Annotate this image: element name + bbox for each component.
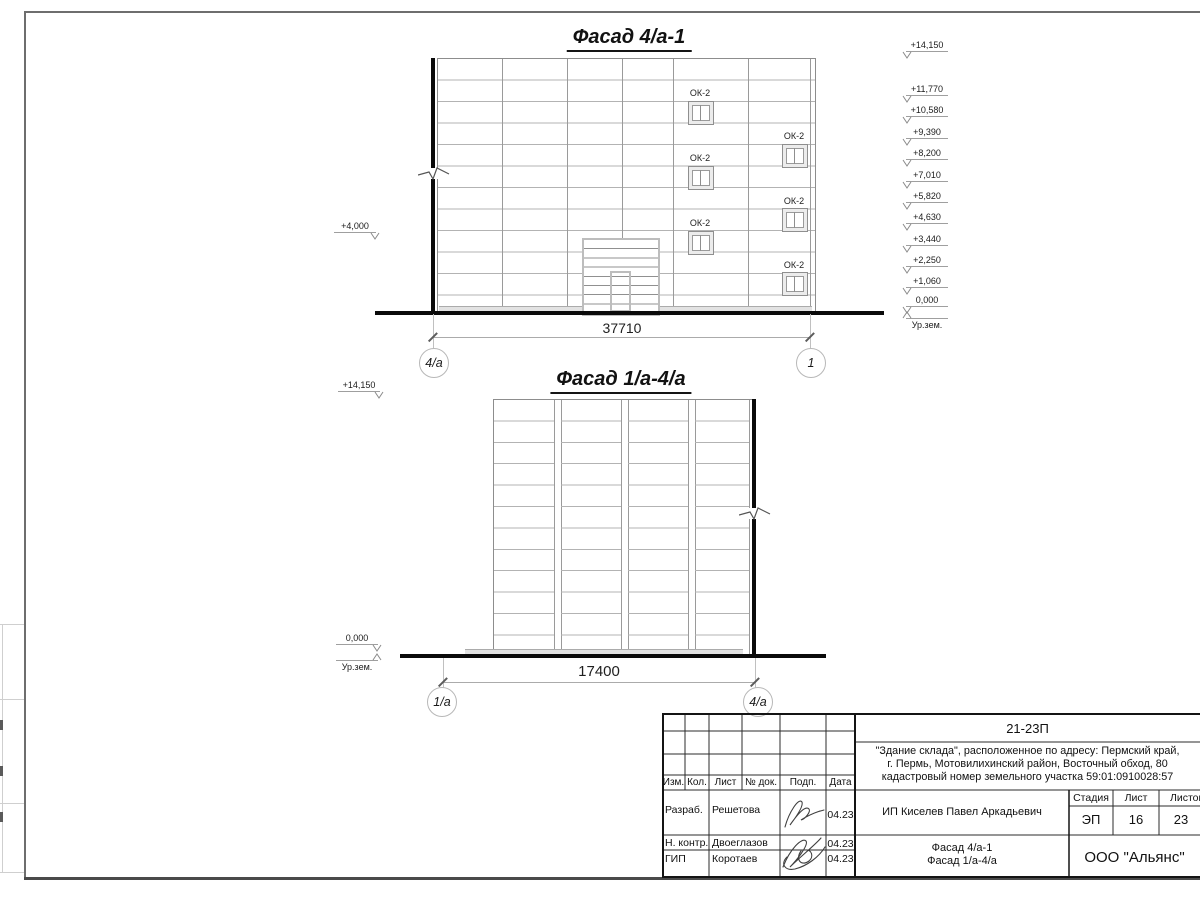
panel-column [494, 400, 554, 657]
side-stamp-line [0, 624, 24, 625]
window-tag: ОК-2 [680, 153, 720, 163]
elevation-tick-icon [902, 95, 912, 103]
facade2-corner-edge [752, 399, 756, 656]
sheet-title-line1: Фасад 4/а-1 [855, 842, 1069, 854]
elevation-mark: +1,060 [906, 276, 948, 288]
date-developer: 04.23 [826, 809, 855, 821]
dimension-line [433, 337, 811, 338]
window-tag: ОК-2 [774, 260, 814, 270]
dimension-line [443, 682, 756, 683]
stage-value: ЭП [1069, 812, 1113, 827]
extension-line [755, 658, 756, 690]
window-ok2 [688, 166, 714, 190]
side-stamp-line [0, 803, 24, 804]
signature-ncontrol-gip [776, 831, 830, 875]
elevation-tick-icon [902, 138, 912, 146]
elevation-mark: +5,820 [906, 191, 948, 203]
col-header-doc: № док. [742, 777, 780, 788]
name-developer: Решетова [712, 804, 760, 816]
elevation-tick-icon [374, 391, 384, 399]
elevation-mark: 0,000 [336, 633, 378, 645]
elevation-tick-icon [902, 266, 912, 274]
window-tag: ОК-2 [774, 131, 814, 141]
elevation-mark: +14,150 [906, 40, 948, 52]
break-symbol-icon [418, 166, 450, 181]
window-ok2 [782, 144, 808, 168]
col-header-izm: Изм. [662, 777, 685, 788]
elevation-tick-icon [902, 181, 912, 189]
wicket-door [610, 271, 631, 312]
window-ok2 [782, 272, 808, 296]
elevation-mark: 0,000 [906, 295, 948, 307]
side-stamp-text-stub [0, 812, 3, 822]
side-stamp-text-stub [0, 720, 3, 730]
col-header-podp: Подп. [780, 777, 826, 788]
date-gip: 04.23 [826, 853, 855, 865]
elevation-tick-icon [902, 223, 912, 231]
panel-joint-line [749, 400, 750, 657]
elevation-mark: +4,630 [906, 212, 948, 224]
drawing-sheet: Фасад 4/а-1 ОК-2 ОК-2 ОК-2 ОК-2 ОК-2 ОК-… [0, 0, 1200, 900]
role-developer: Разраб. [665, 804, 703, 816]
frame-top-line [24, 11, 1200, 13]
elevation-mark: +14,150 [338, 380, 380, 392]
ground-level-mark: Ур.зем. [336, 653, 378, 672]
dimension-label: 17400 [539, 663, 659, 680]
elevation-tick-icon [902, 311, 912, 319]
panel-joint-line [748, 59, 749, 314]
window-ok2 [782, 208, 808, 232]
window-ok2 [688, 101, 714, 125]
elevation-tick-icon [902, 116, 912, 124]
facade1-corner-edge [431, 58, 435, 313]
elevation-mark: +4,000 [334, 221, 376, 233]
extension-line [443, 658, 444, 690]
sectional-gate [582, 238, 660, 316]
date-ncontrol: 04.23 [826, 838, 855, 850]
elevation-tick-icon [902, 202, 912, 210]
window-tag: ОК-2 [680, 218, 720, 228]
panel-joint-line [567, 59, 568, 314]
window-tag: ОК-2 [680, 88, 720, 98]
side-stamp-line [2, 624, 3, 872]
panel-joint-line [810, 59, 811, 314]
elevation-mark: +10,580 [906, 105, 948, 117]
sheets-header: Листов [1159, 792, 1200, 804]
client-name: ИП Киселев Павел Аркадьевич [855, 806, 1069, 818]
facade2-title: Фасад 1/а-4/а [550, 368, 691, 394]
axis-bubble: 4/а [419, 348, 449, 378]
elevation-tick-icon [372, 653, 382, 661]
frame-left-line [24, 11, 26, 879]
role-gip: ГИП [665, 853, 686, 865]
sheet-header: Лист [1113, 792, 1159, 804]
elevation-mark: +9,390 [906, 127, 948, 139]
elevation-mark: +11,770 [906, 84, 948, 96]
col-header-data: Дата [826, 777, 855, 788]
address-line1: "Здание склада", расположенное по адресу… [857, 745, 1198, 758]
elevation-mark: +8,200 [906, 148, 948, 160]
extension-line [810, 314, 811, 348]
elevation-tick-icon [902, 159, 912, 167]
side-stamp-line [0, 699, 24, 700]
company-name: ООО "Альянс" [1069, 849, 1200, 866]
address-line2: г. Пермь, Мотовилихинский район, Восточн… [857, 758, 1198, 771]
elevation-tick-icon [370, 232, 380, 240]
side-stamp-line [0, 872, 24, 873]
panel-column [561, 400, 621, 657]
elevation-tick-icon [902, 287, 912, 295]
elevation-tick-icon [902, 51, 912, 59]
ground-level-mark: Ур.зем. [906, 311, 948, 330]
project-address: "Здание склада", расположенное по адресу… [857, 745, 1198, 784]
stage-header: Стадия [1069, 792, 1113, 804]
elevation-mark: +3,440 [906, 234, 948, 246]
facade1-title: Фасад 4/а-1 [567, 26, 692, 52]
sheets-value: 23 [1159, 812, 1200, 827]
sheet-title-line2: Фасад 1/а-4/а [855, 855, 1069, 867]
window-ok2 [688, 231, 714, 255]
col-header-kol: Кол. [685, 777, 709, 788]
extension-line [433, 314, 434, 348]
signature-developer [780, 794, 826, 832]
col-header-list: Лист [709, 777, 742, 788]
window-tag: ОК-2 [774, 196, 814, 206]
elevation-tick-icon [372, 644, 382, 652]
doc-number: 21-23П [855, 721, 1200, 736]
elevation-mark: +7,010 [906, 170, 948, 182]
panel-joint-line [673, 59, 674, 314]
role-ncontrol: Н. контр. [665, 837, 708, 849]
facade2-building [493, 399, 756, 657]
panel-joint-line [502, 59, 503, 314]
elevation-tick-icon [902, 245, 912, 253]
dimension-label: 37710 [562, 320, 682, 336]
address-line3: кадастровый номер земельного участка 59:… [857, 771, 1198, 784]
break-symbol-icon [739, 506, 771, 521]
facade2-ground-line [400, 654, 826, 658]
sheet-value: 16 [1113, 812, 1159, 827]
elevation-mark: +2,250 [906, 255, 948, 267]
name-ncontrol: Двоеглазов [712, 837, 768, 849]
panel-column [695, 400, 749, 657]
side-stamp-text-stub [0, 766, 3, 776]
axis-bubble: 1 [796, 348, 826, 378]
name-gip: Коротаев [712, 853, 757, 865]
panel-column [628, 400, 688, 657]
facade1-ground-line [375, 311, 884, 315]
axis-bubble: 1/а [427, 687, 457, 717]
